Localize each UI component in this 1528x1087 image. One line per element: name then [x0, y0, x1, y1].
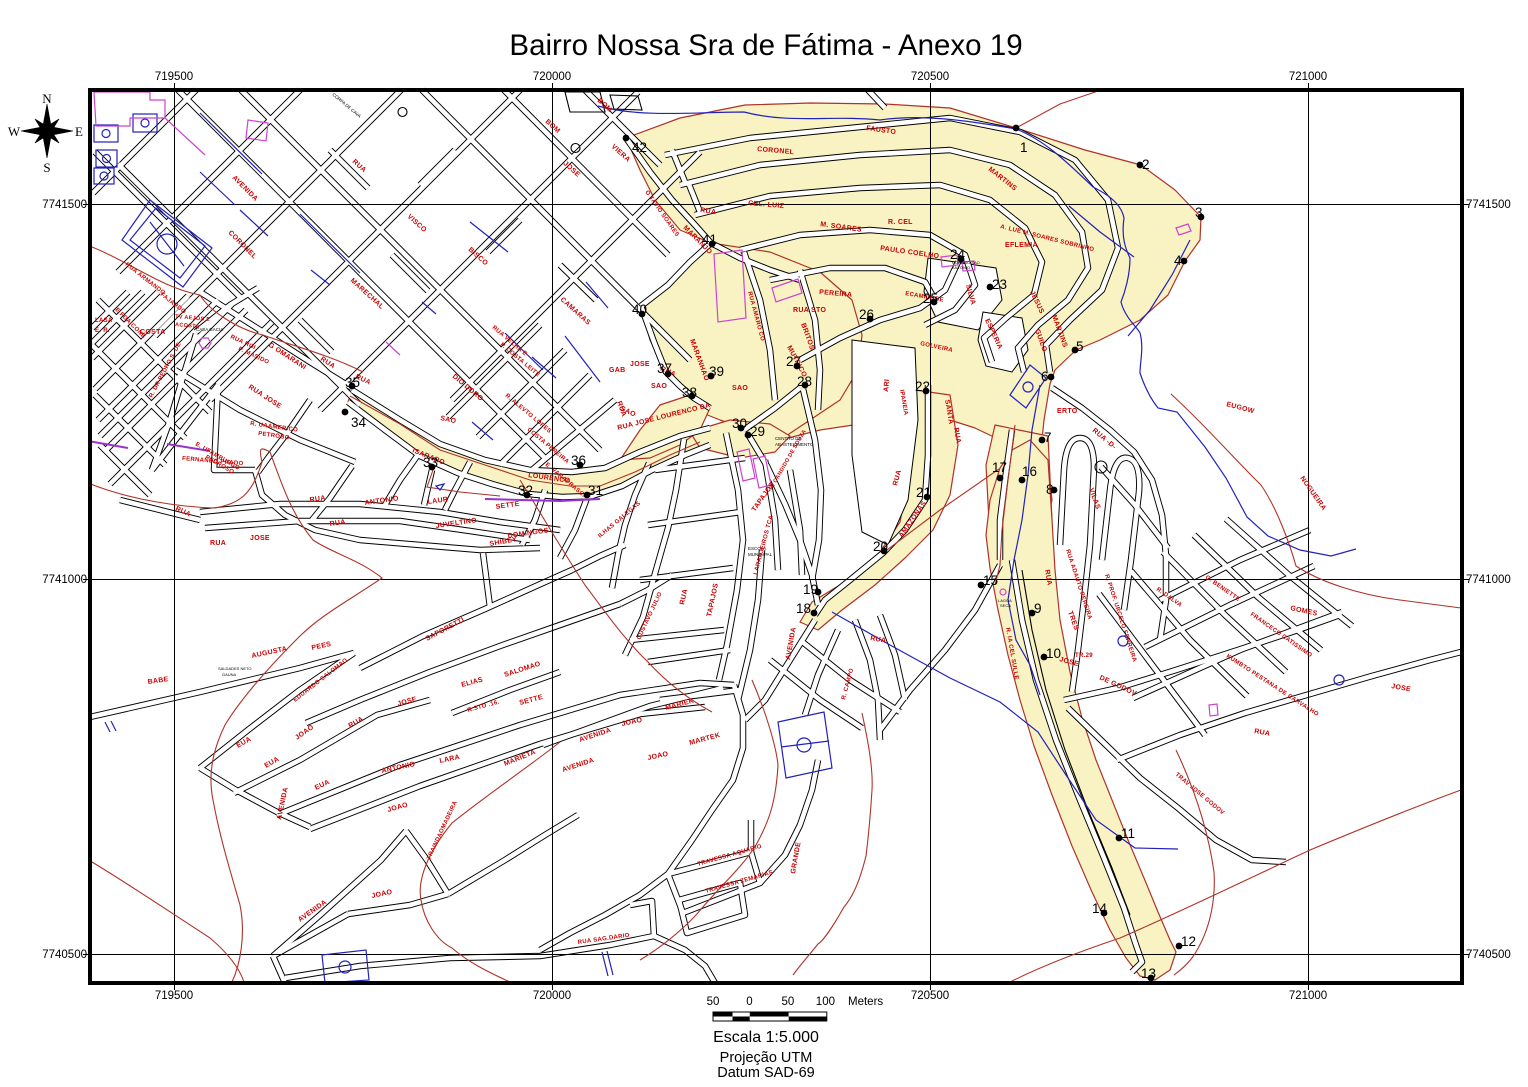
svg-text:GAB: GAB — [609, 367, 625, 374]
svg-text:36: 36 — [571, 453, 586, 468]
svg-text:11: 11 — [1121, 826, 1135, 841]
svg-text:7740500: 7740500 — [42, 949, 87, 961]
svg-text:21: 21 — [916, 485, 931, 500]
svg-text:24: 24 — [950, 247, 966, 262]
svg-text:2: 2 — [1142, 157, 1150, 172]
svg-text:Escala 1:5.000: Escala 1:5.000 — [713, 1029, 819, 1046]
svg-text:26: 26 — [859, 307, 874, 322]
svg-text:7741500: 7741500 — [42, 199, 87, 211]
svg-text:EFLEMIA: EFLEMIA — [1005, 242, 1038, 249]
svg-text:3: 3 — [1195, 205, 1203, 220]
svg-text:GAUNA: GAUNA — [222, 672, 237, 677]
svg-text:7741500: 7741500 — [1466, 199, 1511, 211]
svg-text:N: N — [42, 91, 52, 106]
svg-text:38: 38 — [682, 385, 697, 400]
svg-text:ANTONIO: ANTONIO — [952, 265, 970, 270]
svg-text:17: 17 — [992, 460, 1007, 475]
svg-text:Meters: Meters — [848, 996, 883, 1008]
svg-text:719500: 719500 — [155, 990, 193, 1002]
svg-text:7741000: 7741000 — [1466, 574, 1511, 586]
svg-text:721000: 721000 — [1289, 71, 1327, 83]
svg-text:ABASTECIMENTO: ABASTECIMENTO — [775, 442, 814, 447]
svg-text:39: 39 — [709, 364, 724, 379]
svg-text:41: 41 — [702, 232, 717, 247]
svg-text:Bairro Nossa Sra de Fátima - A: Bairro Nossa Sra de Fátima - Anexo 19 — [509, 29, 1022, 62]
svg-text:10: 10 — [1046, 646, 1061, 661]
svg-text:50: 50 — [707, 996, 720, 1008]
svg-text:32: 32 — [518, 483, 533, 498]
svg-text:720000: 720000 — [533, 71, 571, 83]
svg-text:RUA: RUA — [210, 540, 226, 547]
svg-text:8: 8 — [1046, 482, 1054, 497]
svg-text:4: 4 — [1174, 253, 1182, 268]
svg-text:7: 7 — [1044, 430, 1052, 445]
svg-text:7741000: 7741000 — [42, 574, 87, 586]
svg-text:MUNICIPAL: MUNICIPAL — [748, 552, 773, 557]
svg-text:34: 34 — [351, 415, 367, 430]
svg-text:7740500: 7740500 — [1466, 949, 1511, 961]
svg-text:31: 31 — [588, 483, 603, 498]
svg-text:W: W — [8, 124, 21, 139]
svg-text:SALDADES NETO: SALDADES NETO — [218, 666, 252, 671]
svg-text:720500: 720500 — [911, 990, 949, 1002]
svg-text:0: 0 — [746, 996, 752, 1008]
svg-text:13: 13 — [1141, 966, 1156, 981]
svg-text:SAO: SAO — [651, 383, 667, 390]
svg-text:LASA: LASA — [95, 318, 113, 324]
svg-text:6: 6 — [1041, 369, 1049, 384]
svg-text:720000: 720000 — [533, 990, 571, 1002]
svg-text:18: 18 — [796, 601, 811, 616]
svg-text:SAO: SAO — [732, 385, 748, 392]
svg-text:27: 27 — [786, 354, 801, 369]
svg-text:E: E — [75, 124, 83, 139]
svg-text:33: 33 — [423, 455, 438, 470]
svg-text:Datum SAD-69: Datum SAD-69 — [717, 1065, 815, 1081]
svg-text:12: 12 — [1181, 934, 1196, 949]
svg-text:20: 20 — [873, 539, 888, 554]
svg-text:719500: 719500 — [155, 71, 193, 83]
svg-text:40: 40 — [632, 302, 647, 317]
svg-text:9: 9 — [1034, 601, 1042, 616]
svg-text:100: 100 — [816, 996, 835, 1008]
svg-text:50: 50 — [782, 996, 795, 1008]
svg-text:SECA: SECA — [1000, 603, 1011, 608]
svg-text:720500: 720500 — [911, 71, 949, 83]
svg-text:E. R.: E. R. — [95, 328, 110, 334]
svg-text:JOSE: JOSE — [250, 535, 270, 542]
svg-text:CENTRO DE: CENTRO DE — [775, 436, 802, 441]
svg-text:ARI: ARI — [883, 379, 891, 393]
svg-text:37: 37 — [657, 361, 672, 376]
svg-text:ERTO: ERTO — [1057, 408, 1078, 415]
svg-text:CASA GACIA: CASA GACIA — [196, 327, 223, 332]
svg-text:19: 19 — [803, 582, 818, 597]
svg-text:16: 16 — [1022, 464, 1037, 479]
svg-text:R. CEL: R. CEL — [888, 219, 913, 226]
svg-text:28: 28 — [797, 374, 812, 389]
svg-text:25: 25 — [923, 291, 938, 306]
svg-text:42: 42 — [632, 140, 647, 155]
svg-text:ESCOLA: ESCOLA — [748, 546, 766, 551]
svg-text:15: 15 — [983, 573, 998, 588]
svg-text:14: 14 — [1092, 901, 1108, 916]
svg-text:RUA STO: RUA STO — [793, 307, 826, 314]
svg-text:5: 5 — [1076, 339, 1084, 354]
svg-text:TR.29: TR.29 — [1075, 653, 1093, 659]
svg-text:23: 23 — [992, 277, 1007, 292]
svg-text:35: 35 — [345, 375, 360, 390]
svg-text:S: S — [43, 160, 50, 175]
svg-text:22: 22 — [915, 379, 930, 394]
svg-text:30: 30 — [732, 416, 747, 431]
svg-text:JOSE: JOSE — [630, 361, 650, 368]
svg-text:Projeção UTM: Projeção UTM — [720, 1050, 813, 1066]
svg-text:29: 29 — [750, 424, 765, 439]
svg-text:721000: 721000 — [1289, 990, 1327, 1002]
svg-text:1: 1 — [1020, 140, 1028, 155]
